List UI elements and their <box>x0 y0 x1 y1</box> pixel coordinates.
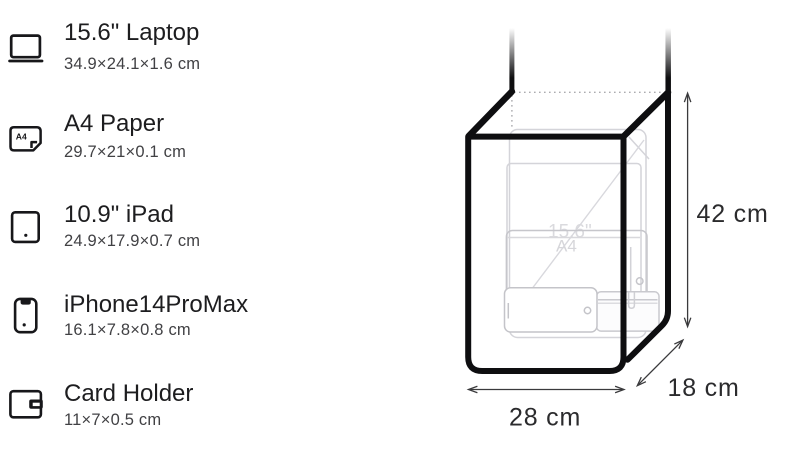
svg-text:42 cm: 42 cm <box>697 200 769 228</box>
svg-text:A4: A4 <box>16 132 27 142</box>
svg-text:28 cm: 28 cm <box>509 404 581 432</box>
svg-text:18 cm: 18 cm <box>668 374 740 402</box>
